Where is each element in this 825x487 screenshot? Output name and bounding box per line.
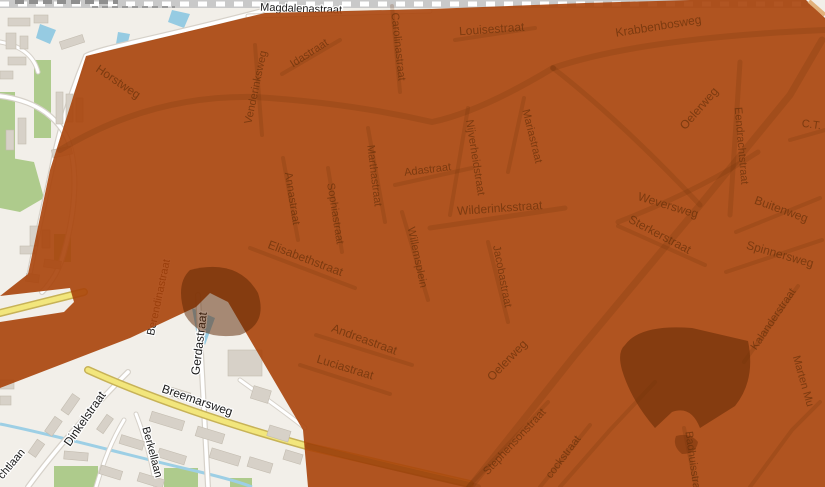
map-viewport[interactable]: MagdalenastraatBreemarswegDinkelstraatGe… <box>0 0 825 487</box>
